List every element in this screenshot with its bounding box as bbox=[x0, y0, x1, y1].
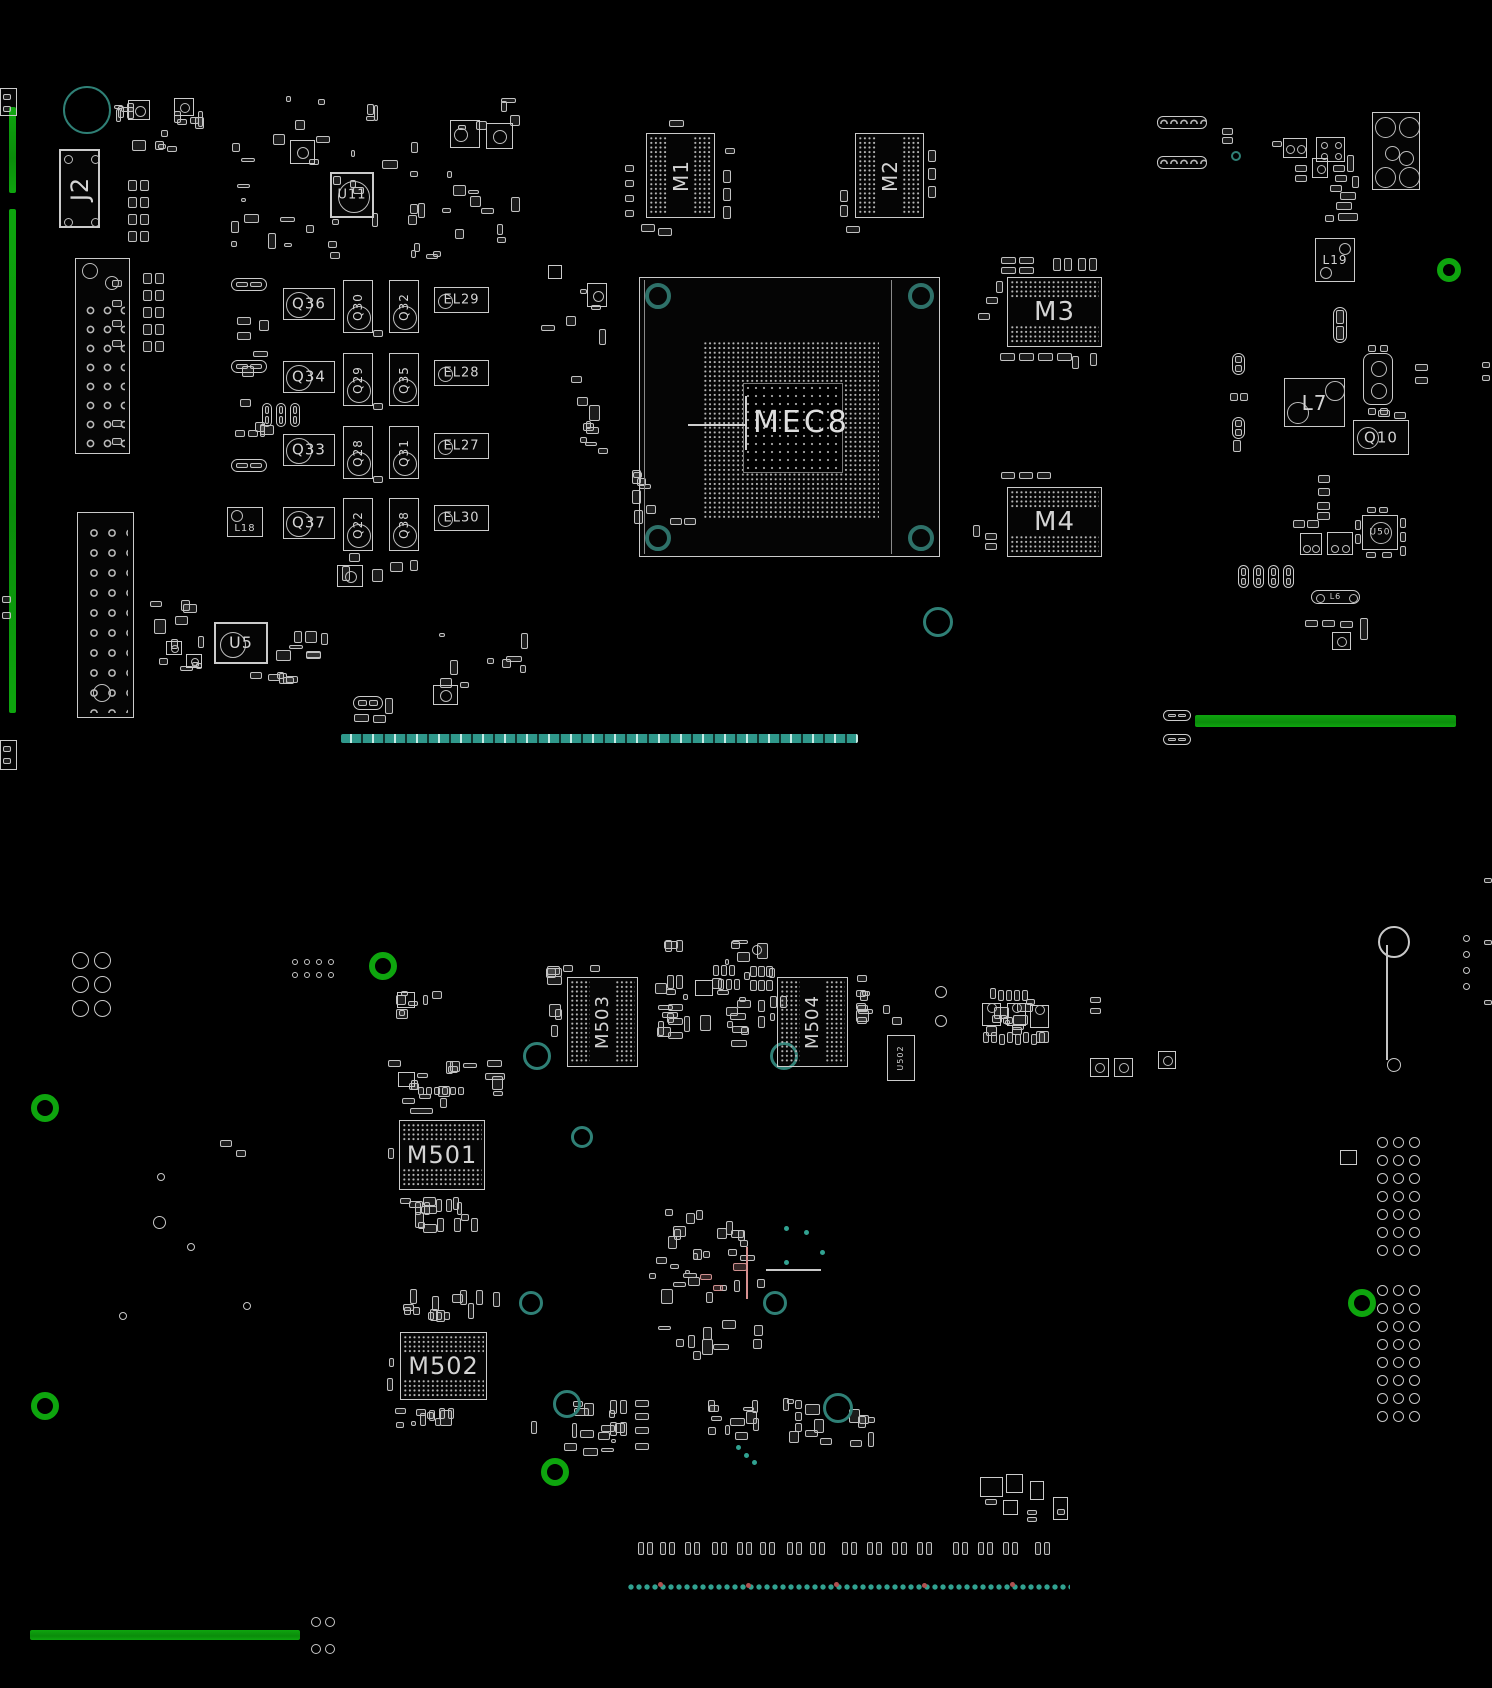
pad bbox=[354, 714, 369, 722]
red-dot bbox=[658, 1582, 663, 1587]
smd-component bbox=[1030, 1481, 1044, 1500]
pad-pair bbox=[901, 1542, 907, 1555]
pad bbox=[1318, 488, 1330, 496]
smd-filter bbox=[231, 360, 267, 373]
pad bbox=[235, 430, 245, 437]
pad bbox=[388, 1148, 394, 1159]
pad bbox=[1222, 128, 1233, 135]
pad bbox=[410, 560, 418, 571]
pad bbox=[128, 231, 137, 242]
pad bbox=[676, 940, 683, 952]
pad bbox=[1484, 940, 1492, 945]
red-dot bbox=[922, 1583, 927, 1588]
pad bbox=[928, 186, 936, 198]
pad bbox=[434, 1087, 440, 1095]
pad bbox=[1318, 475, 1330, 483]
through-hole-ring bbox=[1377, 1137, 1388, 1148]
pad bbox=[1064, 258, 1072, 271]
pad bbox=[1233, 440, 1241, 452]
pad bbox=[686, 1213, 695, 1224]
pad bbox=[446, 1199, 452, 1212]
pad bbox=[661, 1289, 673, 1304]
pad bbox=[487, 658, 493, 664]
pad bbox=[453, 1197, 459, 1210]
through-hole-ring bbox=[1377, 1321, 1388, 1332]
pad bbox=[395, 1408, 406, 1414]
pad bbox=[501, 98, 515, 102]
pad bbox=[415, 1202, 421, 1215]
component-label: EL27 bbox=[444, 440, 480, 453]
through-hole-ring bbox=[304, 972, 310, 978]
pin-ring bbox=[987, 1003, 997, 1013]
pad bbox=[351, 150, 355, 157]
pad bbox=[1335, 175, 1347, 182]
pad bbox=[805, 1430, 818, 1437]
memory-m502: M502 bbox=[400, 1332, 487, 1400]
through-hole-ring bbox=[1409, 1357, 1420, 1368]
pin-pad bbox=[358, 700, 367, 706]
pad bbox=[758, 1000, 765, 1012]
pad bbox=[996, 281, 1003, 293]
component-label: Q28 bbox=[352, 439, 364, 467]
pad bbox=[195, 117, 204, 129]
pad bbox=[155, 307, 164, 318]
pad bbox=[795, 1400, 802, 1409]
pin-ring bbox=[493, 130, 507, 144]
memory-m4: M4 bbox=[1007, 487, 1102, 557]
pad bbox=[735, 1432, 748, 1440]
pad bbox=[732, 940, 748, 945]
pad bbox=[766, 980, 773, 991]
smd-component bbox=[1030, 1005, 1049, 1028]
component-label: Q30 bbox=[352, 293, 364, 321]
mounting-hole-ring bbox=[763, 1291, 787, 1315]
pad bbox=[1378, 410, 1390, 417]
component-label: Q10 bbox=[1364, 430, 1398, 445]
pin-pad bbox=[1168, 738, 1176, 741]
through-hole-ring bbox=[1393, 1339, 1404, 1350]
pad bbox=[577, 397, 589, 405]
smd-pair bbox=[262, 403, 272, 427]
pad bbox=[713, 1344, 729, 1350]
pad bbox=[428, 1312, 434, 1320]
pin-pad bbox=[293, 416, 297, 424]
pad bbox=[766, 966, 773, 977]
pin-ring bbox=[1342, 545, 1350, 553]
pad bbox=[468, 1303, 474, 1318]
pad bbox=[753, 1418, 759, 1431]
through-hole-ring bbox=[1393, 1137, 1404, 1148]
through-hole-ring bbox=[1463, 967, 1470, 974]
pad bbox=[667, 975, 674, 989]
ball-grid bbox=[1010, 325, 1099, 344]
pad bbox=[231, 241, 237, 246]
pad bbox=[497, 224, 503, 235]
pad bbox=[1023, 1032, 1029, 1043]
pin-ring bbox=[1399, 117, 1420, 138]
through-hole-ring bbox=[1409, 1209, 1420, 1220]
pin-pad bbox=[265, 406, 269, 414]
pad-pair bbox=[978, 1542, 984, 1555]
pad bbox=[1037, 472, 1051, 479]
pad bbox=[706, 1292, 713, 1303]
pad bbox=[928, 168, 936, 180]
smd-component bbox=[1003, 1500, 1018, 1515]
pad bbox=[986, 297, 998, 304]
pad bbox=[580, 289, 587, 294]
red-dot bbox=[1010, 1582, 1015, 1587]
pad bbox=[1240, 393, 1248, 401]
pad bbox=[372, 569, 383, 582]
pin-ring bbox=[1286, 145, 1295, 154]
through-hole-ring bbox=[316, 972, 322, 978]
pad bbox=[726, 979, 732, 990]
inductor-l19: L19 bbox=[1315, 238, 1355, 282]
pad bbox=[237, 184, 250, 188]
pin-pad bbox=[1336, 326, 1344, 340]
smd-component bbox=[587, 283, 607, 307]
through-hole-ring bbox=[1393, 1321, 1404, 1332]
pad bbox=[481, 208, 493, 213]
pad bbox=[973, 525, 980, 537]
smd-component bbox=[290, 140, 315, 164]
pad bbox=[410, 204, 418, 214]
through-hole-ring bbox=[292, 972, 298, 978]
through-hole-ring bbox=[1377, 1357, 1388, 1368]
pad bbox=[1006, 990, 1012, 1001]
pad bbox=[273, 134, 285, 145]
pad-pair bbox=[819, 1542, 825, 1555]
smd-component bbox=[433, 685, 458, 705]
pad bbox=[601, 1448, 614, 1453]
pad bbox=[693, 1351, 700, 1360]
component-label: Q32 bbox=[398, 293, 410, 321]
pad bbox=[167, 146, 177, 152]
pad bbox=[155, 290, 164, 301]
pad bbox=[237, 332, 251, 340]
pad bbox=[1360, 618, 1368, 640]
pad bbox=[598, 448, 608, 455]
pad bbox=[150, 601, 162, 607]
pad bbox=[439, 633, 445, 638]
teal-dot bbox=[784, 1226, 789, 1231]
pad bbox=[493, 1292, 500, 1307]
pad bbox=[583, 1448, 598, 1456]
through-hole-ring bbox=[1377, 1155, 1388, 1166]
fet-q30: Q30 bbox=[343, 280, 373, 333]
pad bbox=[402, 1098, 415, 1104]
inductor-el27: EL27 bbox=[434, 433, 489, 459]
inductor-l7: L7 bbox=[1284, 378, 1345, 427]
pad-pair bbox=[851, 1542, 857, 1555]
fet-q38: Q38 bbox=[389, 498, 419, 551]
pad bbox=[236, 1150, 246, 1157]
edge-connector-bottom bbox=[0, 740, 17, 770]
smd-component bbox=[397, 992, 415, 1008]
pad-pair bbox=[1003, 1542, 1009, 1555]
pin-pad bbox=[1241, 578, 1246, 586]
pad bbox=[721, 965, 727, 976]
pad bbox=[476, 1290, 483, 1305]
ball-grid bbox=[402, 1168, 482, 1187]
component-label: M504 bbox=[804, 995, 822, 1049]
memory-m501: M501 bbox=[399, 1120, 485, 1190]
pad bbox=[305, 631, 317, 642]
ball-grid bbox=[693, 136, 712, 215]
pad bbox=[128, 214, 137, 225]
pad bbox=[589, 405, 600, 421]
pin-ring bbox=[1335, 153, 1342, 160]
pad bbox=[289, 645, 303, 649]
smd-filter bbox=[1163, 710, 1191, 721]
component-label: EL30 bbox=[444, 512, 480, 525]
through-hole-ring bbox=[1393, 1191, 1404, 1202]
pin-ring bbox=[1035, 1005, 1045, 1015]
component-label: M501 bbox=[407, 1143, 478, 1167]
pin-ring bbox=[1095, 1063, 1105, 1073]
pad bbox=[1090, 1008, 1101, 1014]
pad bbox=[1367, 507, 1376, 513]
smd-component bbox=[337, 565, 363, 587]
pin-ring bbox=[1297, 145, 1306, 154]
fet-q36: Q36 bbox=[283, 288, 335, 320]
pad bbox=[471, 1218, 478, 1232]
pad bbox=[673, 1226, 686, 1238]
pad bbox=[789, 1431, 799, 1443]
pin-ring bbox=[231, 510, 243, 522]
ic-u11: U11 bbox=[330, 172, 374, 218]
pin-pad bbox=[1235, 429, 1242, 436]
through-hole-ring bbox=[328, 959, 334, 965]
ic-u502: U502 bbox=[887, 1035, 915, 1081]
pin-ring bbox=[1317, 165, 1326, 174]
pad-pair bbox=[721, 1542, 727, 1555]
through-hole-ring bbox=[1409, 1339, 1420, 1350]
chip-label: MEC8 bbox=[753, 408, 850, 438]
via-ring bbox=[1387, 1058, 1401, 1072]
pad bbox=[432, 991, 441, 999]
smd-component bbox=[1007, 1003, 1026, 1026]
pad bbox=[1333, 165, 1345, 172]
through-hole-ring bbox=[1377, 1411, 1388, 1422]
pad bbox=[159, 658, 168, 665]
pin-ring bbox=[593, 291, 604, 302]
pad bbox=[1057, 353, 1072, 361]
pad bbox=[268, 674, 280, 681]
pad bbox=[250, 672, 262, 679]
pad bbox=[583, 423, 594, 431]
pin-pad bbox=[1241, 568, 1246, 576]
pad bbox=[463, 1063, 477, 1068]
pad bbox=[850, 1440, 862, 1447]
plated-hole-ring bbox=[541, 1458, 569, 1486]
pad bbox=[655, 983, 667, 995]
pad bbox=[468, 190, 479, 195]
pad bbox=[703, 1251, 710, 1258]
ball-grid bbox=[402, 1123, 482, 1142]
pad bbox=[286, 96, 291, 101]
pad bbox=[1072, 356, 1079, 369]
via-ring bbox=[325, 1644, 335, 1654]
pad-pair bbox=[1012, 1542, 1018, 1555]
pad bbox=[175, 616, 187, 625]
pin-ring bbox=[1399, 151, 1414, 166]
pad bbox=[753, 1339, 762, 1349]
pad bbox=[318, 99, 325, 106]
inductor-l6: L6 bbox=[1311, 590, 1360, 604]
component-label: M4 bbox=[1034, 509, 1075, 535]
pad bbox=[458, 1087, 464, 1095]
pad bbox=[295, 120, 305, 131]
pad bbox=[237, 317, 251, 325]
pin-ring bbox=[191, 658, 199, 666]
pad bbox=[985, 533, 997, 540]
pad bbox=[754, 1325, 763, 1336]
pad bbox=[635, 1427, 649, 1434]
smd-filter bbox=[1163, 734, 1191, 745]
pad bbox=[1355, 520, 1361, 530]
pad bbox=[669, 120, 684, 127]
pad bbox=[858, 1416, 865, 1427]
fet-q32: Q32 bbox=[389, 280, 419, 333]
pin-ring bbox=[1349, 594, 1358, 603]
smd-component bbox=[1327, 532, 1353, 555]
pad bbox=[703, 1327, 713, 1340]
pad bbox=[413, 1307, 420, 1315]
connector-header-upper bbox=[75, 258, 130, 454]
pad bbox=[625, 165, 634, 172]
pad bbox=[541, 325, 555, 331]
board-line bbox=[1386, 945, 1388, 1060]
smd-pair bbox=[290, 403, 300, 427]
pad bbox=[985, 543, 997, 550]
pad bbox=[497, 237, 506, 242]
pad bbox=[730, 1418, 745, 1426]
pad bbox=[1014, 990, 1020, 1001]
pad-pair bbox=[746, 1542, 752, 1555]
edge-connector-top bbox=[0, 88, 17, 116]
pad bbox=[140, 180, 149, 191]
pad bbox=[1295, 165, 1307, 172]
pad bbox=[286, 676, 298, 683]
through-hole-ring bbox=[1377, 1285, 1388, 1296]
pad bbox=[1295, 175, 1307, 182]
teal-dot bbox=[820, 1250, 825, 1255]
via-ring bbox=[311, 1617, 321, 1627]
pad bbox=[725, 1425, 731, 1435]
power-jack bbox=[1372, 112, 1420, 190]
ball-grid bbox=[902, 136, 921, 215]
pad bbox=[442, 208, 451, 213]
through-hole-ring bbox=[1377, 1375, 1388, 1386]
pad bbox=[685, 1270, 690, 1274]
pin-pad bbox=[250, 282, 262, 287]
pad bbox=[437, 1218, 444, 1232]
pin-ring bbox=[1371, 361, 1387, 377]
pad bbox=[433, 251, 441, 257]
pad bbox=[450, 1087, 456, 1095]
smd-component bbox=[1332, 632, 1351, 650]
inductor-el28: EL28 bbox=[434, 360, 489, 386]
component-label: Q33 bbox=[292, 443, 326, 458]
pad bbox=[143, 341, 152, 352]
smd-component bbox=[1006, 1474, 1023, 1493]
pad bbox=[410, 171, 419, 177]
pad bbox=[128, 180, 137, 191]
pad bbox=[493, 1091, 503, 1096]
pad bbox=[572, 1423, 578, 1438]
fet-q35: Q35 bbox=[389, 353, 419, 406]
pin-ring bbox=[180, 103, 190, 113]
pad bbox=[418, 1087, 424, 1095]
via-ring bbox=[187, 1243, 195, 1251]
pad bbox=[460, 682, 470, 688]
pad bbox=[411, 1421, 416, 1426]
pad bbox=[1355, 534, 1361, 544]
pin-ring bbox=[1375, 167, 1396, 188]
fet-q31: Q31 bbox=[389, 426, 419, 479]
pad bbox=[731, 1040, 747, 1047]
pad bbox=[1382, 552, 1392, 558]
pin-ring bbox=[135, 106, 146, 117]
pad bbox=[1293, 520, 1305, 528]
component-label: Q31 bbox=[398, 439, 410, 467]
pad bbox=[444, 1312, 450, 1320]
component-label: M502 bbox=[408, 1354, 479, 1378]
through-hole-ring bbox=[1393, 1285, 1404, 1296]
red-dot bbox=[834, 1582, 839, 1587]
pad bbox=[990, 988, 996, 999]
pin-pad bbox=[1256, 568, 1261, 576]
through-hole-ring bbox=[1393, 1155, 1404, 1166]
pad bbox=[1222, 137, 1233, 144]
pad-pair bbox=[953, 1542, 959, 1555]
pad bbox=[635, 1443, 649, 1450]
pad-pair bbox=[987, 1542, 993, 1555]
pad bbox=[487, 1060, 502, 1067]
pad bbox=[143, 290, 152, 301]
fet-q28: Q28 bbox=[343, 426, 373, 479]
smd-component bbox=[186, 654, 202, 668]
ball-grid bbox=[825, 980, 845, 1064]
pad bbox=[752, 1400, 758, 1413]
pad bbox=[729, 965, 735, 976]
pad bbox=[470, 196, 481, 207]
memory-m504: M504 bbox=[777, 977, 848, 1067]
pad bbox=[711, 1416, 722, 1420]
edge-green-bar bbox=[9, 209, 16, 713]
pad bbox=[688, 1335, 696, 1348]
smd-component bbox=[1158, 1051, 1176, 1069]
pad bbox=[1322, 620, 1335, 627]
through-hole-ring bbox=[1393, 1393, 1404, 1404]
through-hole-ring bbox=[94, 976, 111, 993]
teal-dot bbox=[736, 1445, 741, 1450]
through-hole-ring bbox=[1463, 935, 1470, 942]
pad bbox=[758, 966, 765, 977]
pad bbox=[668, 1032, 683, 1039]
pad bbox=[373, 330, 383, 337]
pad bbox=[387, 1378, 393, 1391]
pad bbox=[713, 965, 719, 976]
pad-pair bbox=[669, 1542, 675, 1555]
pad bbox=[373, 403, 383, 410]
pad bbox=[332, 219, 339, 225]
pad bbox=[506, 656, 522, 662]
through-hole-ring bbox=[72, 976, 89, 993]
pin-pad bbox=[1271, 578, 1276, 586]
connector-j2: J2 bbox=[59, 149, 100, 228]
